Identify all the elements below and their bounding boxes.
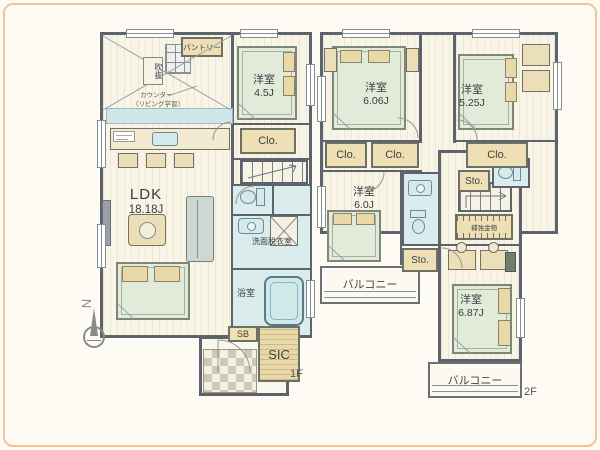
- desk-chair: [505, 252, 516, 272]
- desk: [448, 250, 476, 270]
- wall: [438, 244, 522, 246]
- ldk-size: 18.18J: [106, 204, 186, 218]
- cushion: [122, 266, 148, 282]
- pillow: [505, 82, 517, 102]
- compass-needle: [90, 308, 98, 336]
- void-label: 吹抜: [154, 63, 163, 79]
- pillow: [498, 288, 511, 314]
- room-b-name: 洋室: [450, 84, 494, 97]
- pillow: [333, 213, 352, 225]
- shoe-box: SB: [228, 326, 258, 342]
- window: [306, 64, 315, 106]
- void-label-box: 吹抜: [143, 57, 163, 85]
- stool: [118, 153, 138, 168]
- window: [516, 298, 525, 338]
- sic-label: SIC: [268, 347, 290, 362]
- washbasin-1f: [238, 218, 264, 234]
- kitchen-counter: [106, 108, 233, 124]
- floor-plan-canvas: パントリー 吹抜 カウンター （リビング学習） LDK 18.18J 洋室 4.…: [0, 0, 600, 450]
- pillow: [498, 320, 511, 346]
- kitchen-annotation-box: [113, 131, 135, 142]
- hardware-box: 補強金物: [455, 214, 513, 240]
- bath-label: 浴室: [237, 286, 255, 299]
- balcony-rails: [432, 383, 518, 393]
- compass-tick: [87, 340, 101, 341]
- desk: [480, 250, 508, 270]
- basin-bowl: [416, 184, 425, 193]
- window: [317, 76, 326, 122]
- room-c-label: 洋室 6.0J: [342, 186, 386, 211]
- room-a-name: 洋室: [350, 82, 402, 95]
- window: [126, 29, 174, 38]
- room-c-size: 6.0J: [342, 199, 386, 211]
- side-table: [324, 48, 337, 72]
- cushion: [154, 266, 180, 282]
- closet3-label: Clo.: [487, 149, 507, 161]
- toilet-bowl-1f: [240, 190, 256, 204]
- toilet-tank-1f: [256, 188, 265, 206]
- wall: [419, 35, 422, 143]
- pillow: [283, 52, 295, 72]
- ldk-label: LDK 18.18J: [106, 186, 186, 217]
- closet2-label: Clo.: [385, 149, 405, 161]
- closet-box: Clo.: [325, 142, 367, 168]
- wall: [233, 123, 310, 125]
- wall: [233, 268, 310, 270]
- stool: [174, 153, 194, 168]
- window: [97, 224, 106, 268]
- pillow: [368, 50, 390, 63]
- stool: [146, 153, 166, 168]
- shoe-box-label: SB: [237, 329, 249, 339]
- bathtub-inner: [270, 282, 298, 320]
- room-a-size: 6.06J: [350, 95, 402, 107]
- desk-stool: [488, 242, 499, 253]
- toilet-bowl-2f-center: [412, 219, 425, 234]
- balcony-rails: [324, 289, 416, 299]
- floor2-label: 2F: [524, 386, 537, 398]
- room-d-label: 洋室 6.87J: [446, 294, 496, 319]
- room-b-size: 5.25J: [450, 97, 494, 109]
- storage2-label: Sto.: [411, 255, 429, 266]
- floor1-label: 1F: [290, 368, 303, 380]
- window: [472, 29, 520, 38]
- washbasin-2f: [408, 180, 432, 196]
- closet-box: Clo.: [371, 142, 419, 168]
- toilet-tank-2f-center: [410, 210, 426, 218]
- closet-1f-label: Clo.: [258, 135, 278, 147]
- wardrobe: [522, 70, 550, 92]
- entrance-porch-tiles: [203, 349, 257, 393]
- room-d-name: 洋室: [446, 294, 496, 307]
- bedroom45-size: 4.5J: [238, 87, 290, 99]
- wardrobe: [522, 44, 550, 66]
- bedroom45-label: 洋室 4.5J: [238, 74, 290, 99]
- kitchen-sink: [152, 132, 178, 146]
- pillow: [340, 50, 362, 63]
- bedroom45-name: 洋室: [238, 74, 290, 87]
- room-b-label: 洋室 5.25J: [450, 84, 494, 109]
- counter-note-line2: （リビング学習）: [132, 98, 184, 108]
- room-a-label: 洋室 6.06J: [350, 82, 402, 107]
- balcony-right: バルコニー: [428, 362, 522, 398]
- wall: [272, 186, 274, 214]
- window: [553, 62, 562, 110]
- washroom-label: 洗面脱衣室: [234, 236, 310, 247]
- pillow: [356, 213, 375, 225]
- ldk-name: LDK: [106, 186, 186, 204]
- window: [97, 120, 106, 168]
- table-plate: [139, 222, 156, 239]
- stairs-1f: [240, 160, 308, 184]
- basin-bowl: [247, 222, 256, 231]
- hardware-label: 補強金物: [471, 222, 497, 232]
- storage-box: Sto.: [402, 248, 438, 272]
- window: [306, 280, 315, 318]
- pillow: [505, 58, 517, 78]
- closet-1f-box: Clo.: [240, 128, 296, 154]
- desk-stool: [456, 242, 467, 253]
- closet1-label: Clo.: [336, 149, 356, 161]
- window: [342, 29, 390, 38]
- pantry-label: パントリー: [183, 42, 221, 53]
- side-table: [406, 48, 419, 72]
- sofa: [186, 196, 214, 262]
- room-d-size: 6.87J: [446, 307, 496, 319]
- window: [317, 186, 326, 228]
- storage1-label: Sto.: [465, 176, 483, 187]
- storage-box: Sto.: [458, 170, 490, 192]
- window: [240, 29, 278, 38]
- sofa-cushion: [190, 200, 198, 258]
- bathtub: [264, 276, 304, 326]
- pantry-box: パントリー: [181, 37, 223, 57]
- living-table: [128, 214, 166, 246]
- room-c-name: 洋室: [342, 186, 386, 199]
- closet-box: Clo.: [466, 142, 528, 168]
- compass-n: N: [79, 299, 94, 308]
